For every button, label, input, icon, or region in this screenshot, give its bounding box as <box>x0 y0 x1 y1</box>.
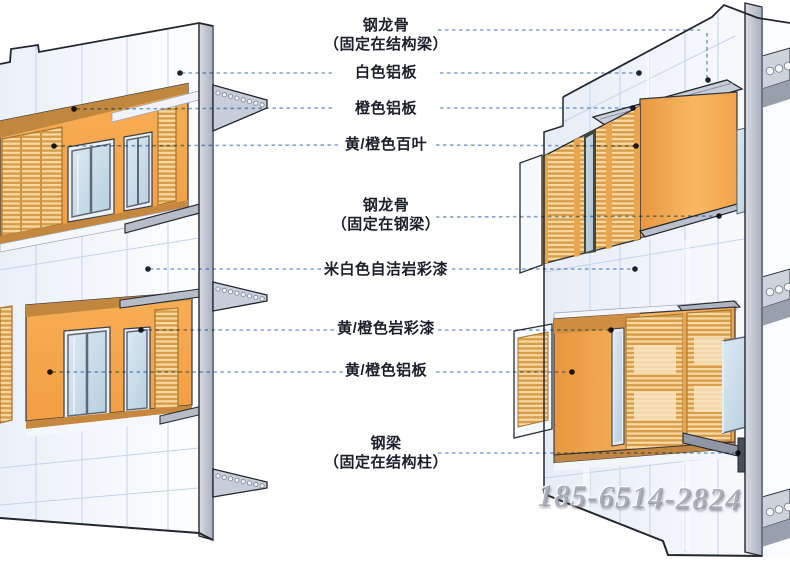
label-line: （固定在结构梁） <box>286 35 486 54</box>
louver-panel <box>2 127 62 236</box>
window-glass <box>127 330 147 410</box>
label-line: （固定在结构柱） <box>286 453 486 472</box>
steel-bar <box>738 438 745 472</box>
label-white-aluminum-panel: 白色铝板 <box>286 63 486 82</box>
partial-louver <box>0 306 12 423</box>
diagram-canvas: 钢龙骨 （固定在结构梁） 白色铝板 橙色铝板 黄/橙色百叶 钢龙骨 （固定在钢梁… <box>0 0 790 566</box>
steel-column <box>745 3 762 556</box>
label-steel-beam-structural-column: 钢梁 （固定在结构柱） <box>286 434 486 472</box>
lower-orange-band <box>0 288 207 437</box>
louver-panel <box>158 101 176 205</box>
label-line: （固定在钢梁） <box>286 215 486 234</box>
label-line: 黄/橙色百叶 <box>286 135 486 154</box>
steel-column <box>199 23 213 540</box>
label-line: 黄/橙色岩彩漆 <box>286 319 486 338</box>
label-steel-keel-structural-beam: 钢龙骨 （固定在结构梁） <box>286 16 486 54</box>
window-glass <box>586 134 593 252</box>
label-line: 钢龙骨 <box>286 16 486 35</box>
label-steel-keel-steel-beam: 钢龙骨 （固定在钢梁） <box>286 196 486 234</box>
label-line: 钢梁 <box>286 434 486 453</box>
label-orange-aluminum-panel: 橙色铝板 <box>286 99 486 118</box>
label-line: 米白色自洁岩彩漆 <box>286 260 486 279</box>
label-yellow-orange-aluminum-panel: 黄/橙色铝板 <box>286 361 486 380</box>
label-line: 白色铝板 <box>286 63 486 82</box>
label-yellow-orange-louvers: 黄/橙色百叶 <box>286 135 486 154</box>
louver-panel <box>626 314 683 451</box>
label-yellow-orange-rock-paint: 黄/橙色岩彩漆 <box>286 319 486 338</box>
label-line: 黄/橙色铝板 <box>286 361 486 380</box>
watermark-phone-number: 185-6514-2824 <box>538 478 759 519</box>
window-glass <box>614 331 622 443</box>
louver-panel <box>155 308 178 414</box>
label-offwhite-selfcleaning-paint: 米白色自洁岩彩漆 <box>286 260 486 279</box>
left-building <box>0 23 267 540</box>
label-line: 钢龙骨 <box>286 196 486 215</box>
label-line: 橙色铝板 <box>286 99 486 118</box>
white-fin <box>520 155 542 273</box>
perforated-steel-brackets <box>213 85 267 497</box>
right-building <box>514 3 790 557</box>
